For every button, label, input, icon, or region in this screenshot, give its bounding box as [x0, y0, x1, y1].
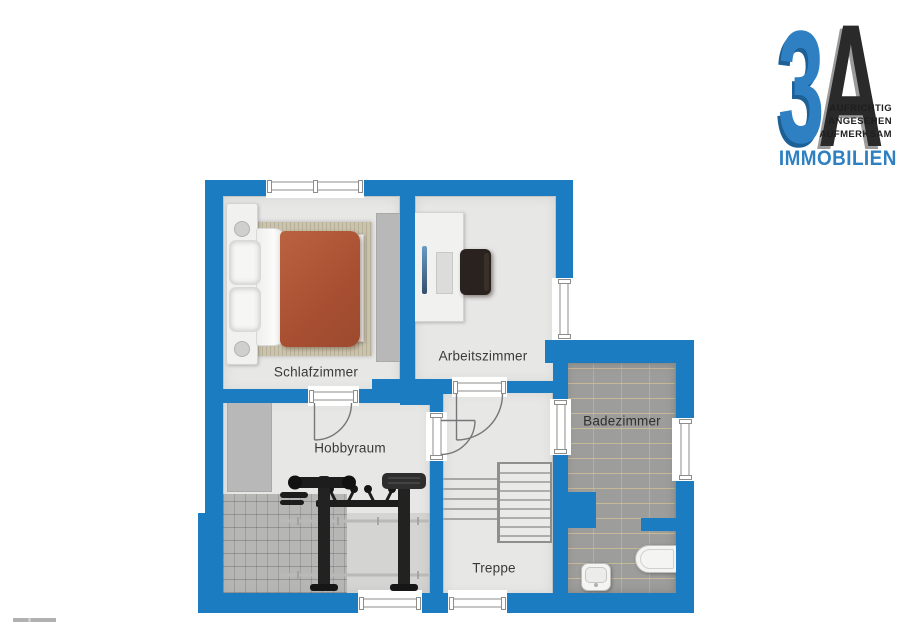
stair-upper-flight — [498, 462, 552, 543]
room-label-bedroom: Schlafzimmer — [274, 365, 358, 380]
logo-number-3: 3 — [778, 7, 824, 167]
roof-slope-tint — [347, 513, 431, 593]
stair-tread — [500, 490, 550, 492]
tagline-line-2: ANGESEHEN — [819, 115, 892, 128]
stair-tread — [500, 472, 550, 474]
floorplan-page: Schlafzimmer Arbeitszimmer Hobbyraum Bad… — [0, 0, 900, 636]
bathtub-rim — [640, 549, 674, 569]
window-mullion — [679, 419, 692, 424]
door-jamb — [554, 400, 567, 405]
window-mullion — [679, 475, 692, 480]
door-hobby-hall — [426, 412, 447, 461]
stair-tread — [443, 498, 498, 500]
door-jamb — [430, 413, 443, 418]
door-hall-bathroom — [550, 399, 571, 455]
window-bathroom-right — [672, 418, 698, 481]
office-chair — [460, 249, 491, 295]
door-jamb — [430, 455, 443, 460]
stair-tread — [500, 517, 550, 519]
window-mullion — [359, 597, 364, 610]
window-mullion — [558, 279, 571, 284]
stair-tread — [500, 526, 550, 528]
stair-tread — [500, 508, 550, 510]
window-frame — [360, 599, 420, 608]
bathtub — [635, 545, 678, 573]
headboard-knob — [234, 221, 250, 237]
door-frame — [454, 383, 505, 392]
window-frame — [450, 599, 505, 608]
window-mullion — [558, 334, 571, 339]
door-frame — [556, 401, 565, 453]
hobby-mat — [227, 402, 272, 492]
roof-slope-hatch — [223, 494, 347, 593]
room-label-hobby: Hobbyraum — [314, 441, 386, 456]
bed-blanket — [280, 231, 360, 347]
door-jamb — [501, 381, 506, 394]
logo-brand-name: IMMOBILIEN — [779, 147, 885, 171]
sink-drain — [594, 583, 598, 587]
wall-left-upper — [205, 180, 223, 513]
door-jamb — [309, 390, 314, 403]
wall-bedroom-office — [400, 196, 415, 382]
window-stairs-bottom — [448, 590, 507, 616]
stair-tread — [500, 481, 550, 483]
stair-tread — [443, 478, 498, 480]
window-frame — [681, 420, 690, 479]
door-jamb — [353, 390, 358, 403]
door-jamb — [453, 381, 458, 394]
window-office-right — [552, 278, 576, 340]
window-frame — [560, 280, 569, 338]
sink-bowl — [585, 567, 607, 583]
chair-backrest — [484, 253, 489, 291]
stair-divider — [497, 462, 499, 543]
door-frame — [432, 414, 441, 459]
stair-tread — [500, 499, 550, 501]
window-mullion — [416, 597, 421, 610]
stair-tread — [443, 488, 498, 490]
logo-tagline: AUFRICHTIG ANGESEHEN AUFMERKSAM — [819, 102, 892, 141]
wall-bathroom-jut-left — [568, 492, 596, 528]
door-office-hall — [452, 377, 507, 397]
door-bedroom-hobby — [308, 386, 359, 406]
wall-bathroom-top — [545, 340, 694, 363]
bed-pillow — [229, 287, 261, 332]
sink — [581, 563, 611, 591]
tagline-line-1: AUFRICHTIG — [819, 102, 892, 115]
stair-tread — [443, 518, 498, 520]
monitor — [422, 246, 427, 294]
wall-top — [205, 180, 573, 196]
wall-office-hall — [503, 381, 556, 393]
stair-tread — [443, 508, 498, 510]
door-frame — [310, 392, 357, 401]
room-label-stairs: Treppe — [472, 561, 515, 576]
window-bedroom-top — [266, 174, 364, 198]
stair-tread — [500, 535, 550, 537]
window-mullion — [501, 597, 506, 610]
desk-papers — [436, 252, 453, 294]
window-mullion — [449, 597, 454, 610]
wardrobe — [376, 213, 401, 362]
bed-pillow — [229, 240, 261, 285]
wall-bathroom-jut-right — [641, 518, 676, 531]
tagline-line-3: AUFMERKSAM — [819, 128, 892, 141]
door-jamb — [554, 449, 567, 454]
room-label-office: Arbeitszimmer — [439, 349, 528, 364]
room-label-bathroom: Badezimmer — [583, 414, 661, 429]
window-hobby-bottom — [358, 590, 422, 616]
window-mullion — [313, 180, 318, 193]
company-logo: 3 A AUFRICHTIG ANGESEHEN AUFMERKSAM IMMO… — [765, 5, 897, 175]
window-mullion — [267, 180, 272, 193]
wall-bottom — [198, 593, 694, 613]
headboard-knob — [234, 341, 250, 357]
window-mullion — [358, 180, 363, 193]
fine-print-watermark — [13, 618, 56, 622]
